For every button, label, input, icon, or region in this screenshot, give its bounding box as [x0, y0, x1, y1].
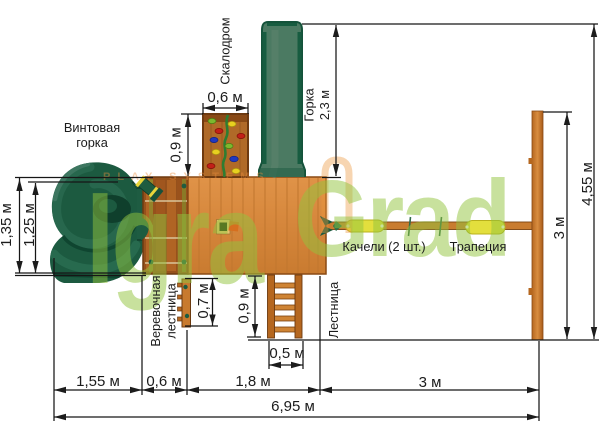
svg-text:4,55 м: 4,55 м — [579, 162, 596, 206]
svg-text:Скалодром: Скалодром — [218, 17, 233, 84]
svg-text:6,95 м: 6,95 м — [271, 398, 315, 415]
svg-text:1,55 м: 1,55 м — [76, 373, 120, 390]
svg-text:3 м: 3 м — [419, 374, 442, 391]
svg-text:Grad: Grad — [294, 158, 508, 279]
svg-text:0,9 м: 0,9 м — [168, 127, 185, 162]
svg-text:лестница: лестница — [164, 282, 179, 338]
svg-text:0,6 м: 0,6 м — [207, 89, 242, 106]
svg-text:2,3 м: 2,3 м — [317, 90, 332, 120]
svg-text:3 м: 3 м — [551, 217, 568, 240]
svg-text:Горка: Горка — [302, 87, 317, 121]
svg-text:1,25 м: 1,25 м — [21, 203, 38, 247]
svg-text:Винтовая: Винтовая — [64, 120, 120, 135]
svg-text:горка: горка — [76, 135, 109, 150]
svg-text:Качели (2 шт.): Качели (2 шт.) — [342, 239, 425, 254]
svg-text:0,9 м: 0,9 м — [236, 288, 253, 323]
svg-text:Веревочная: Веревочная — [148, 275, 163, 346]
svg-text:1,8 м: 1,8 м — [235, 373, 270, 390]
svg-text:Лестница: Лестница — [326, 281, 341, 338]
svg-text:0,5 м: 0,5 м — [269, 345, 304, 362]
svg-text:Трапеция: Трапеция — [450, 239, 507, 254]
svg-text:1,35 м: 1,35 м — [0, 203, 15, 247]
svg-text:0,7 м: 0,7 м — [195, 283, 212, 318]
svg-text:0,6 м: 0,6 м — [146, 373, 181, 390]
